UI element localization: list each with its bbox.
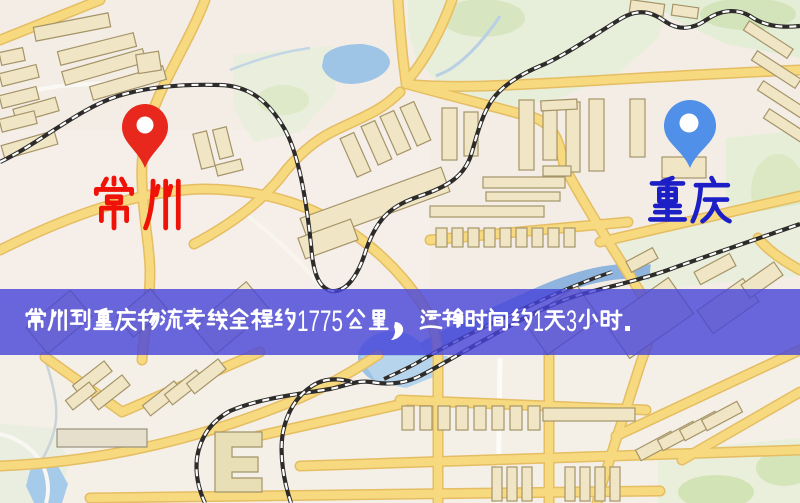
svg-text:1775: 1775	[297, 305, 343, 338]
svg-text:1: 1	[533, 305, 544, 338]
svg-text:3: 3	[566, 305, 577, 338]
